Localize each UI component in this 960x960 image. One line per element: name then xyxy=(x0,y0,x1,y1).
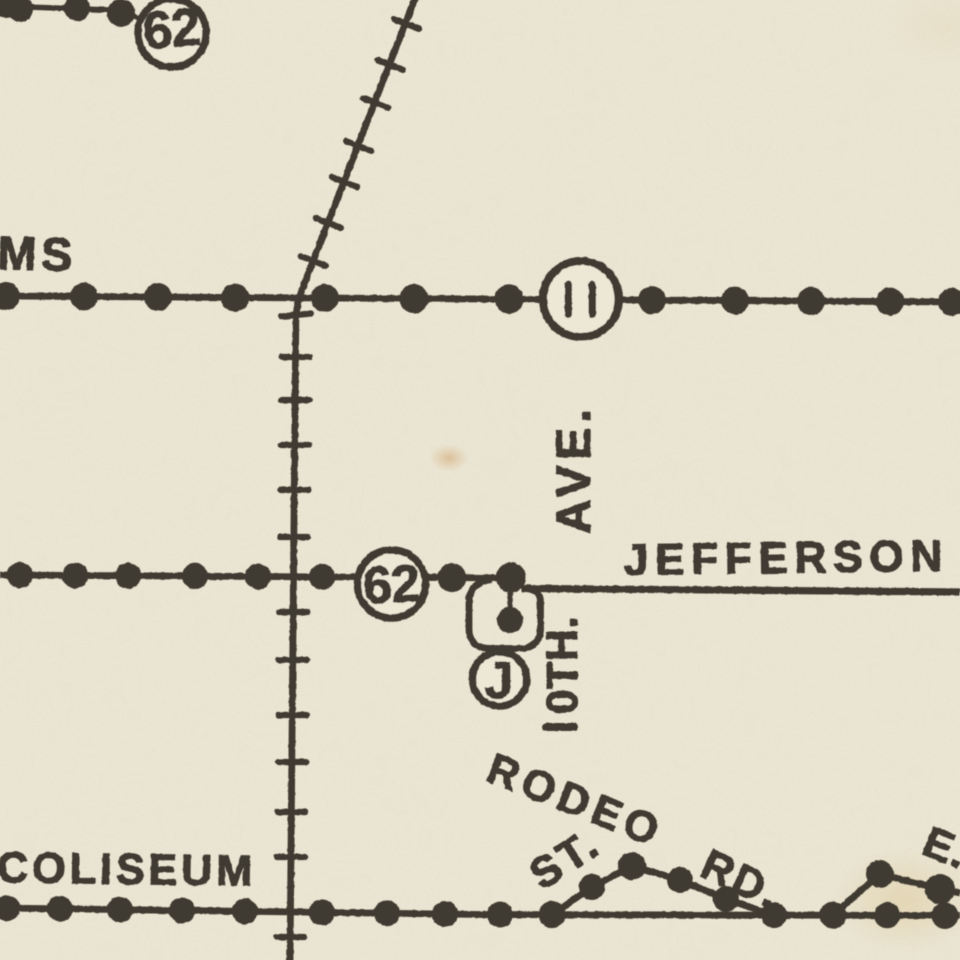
svg-text:0TH.: 0TH. xyxy=(538,615,587,714)
svg-text:J: J xyxy=(485,652,514,710)
svg-text:COLISEUM: COLISEUM xyxy=(0,844,256,896)
svg-text:JEFFERSON: JEFFERSON xyxy=(623,531,949,585)
svg-text:AVE.: AVE. xyxy=(548,404,601,534)
svg-text:62: 62 xyxy=(362,555,421,616)
svg-text:MS: MS xyxy=(0,226,78,281)
svg-text:62: 62 xyxy=(141,0,202,61)
